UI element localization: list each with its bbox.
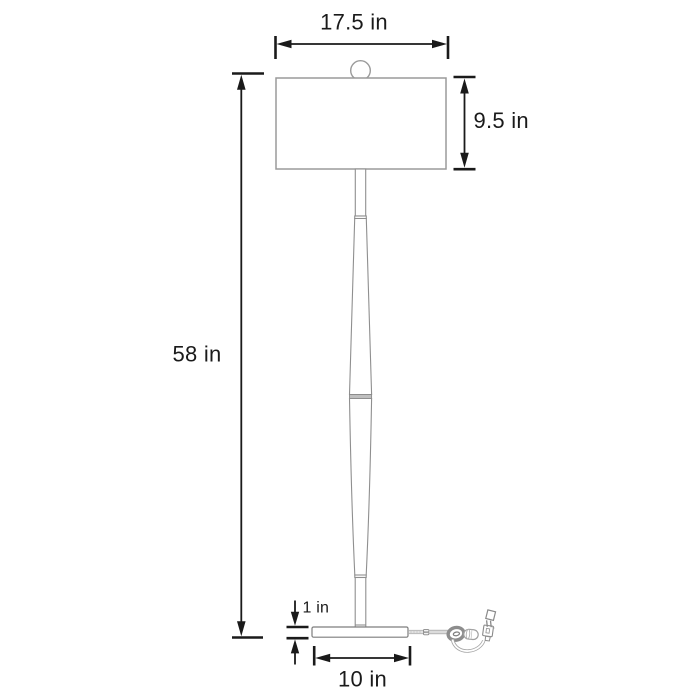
svg-text:1 in: 1 in <box>303 600 330 617</box>
svg-text:58 in: 58 in <box>173 342 222 367</box>
svg-text:10 in: 10 in <box>338 667 387 692</box>
svg-text:9.5 in: 9.5 in <box>474 108 529 133</box>
svg-text:17.5 in: 17.5 in <box>320 10 388 35</box>
